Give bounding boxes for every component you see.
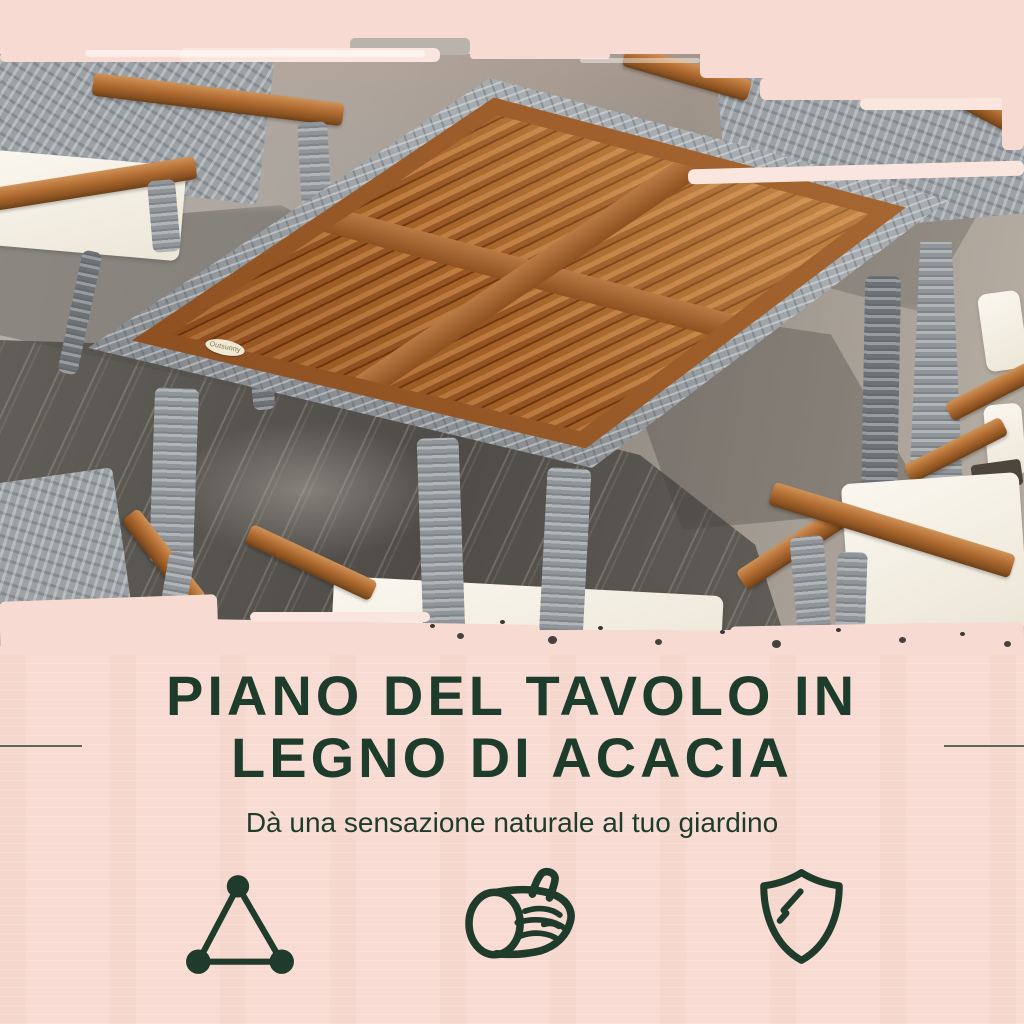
paint-speckles — [430, 624, 435, 628]
paint-stroke-white — [580, 58, 700, 63]
headline-line-1: PIANO DEL TAVOLO IN — [0, 665, 1024, 727]
headline-line-2: LEGNO DI ACACIA — [0, 727, 1024, 789]
paint-stroke — [250, 612, 430, 622]
paint-stroke — [700, 50, 1024, 78]
divider-left — [0, 745, 82, 747]
paint-stroke-top — [0, 0, 1024, 54]
shield-icon — [753, 866, 850, 966]
subtitle: Dà una sensazione naturale al tuo giardi… — [0, 807, 1024, 839]
table-leg — [417, 437, 466, 638]
seat-cushion — [977, 289, 1024, 372]
paint-stroke — [1002, 0, 1024, 150]
headline: PIANO DEL TAVOLO IN LEGNO DI ACACIA — [0, 665, 1024, 789]
product-banner: Outsunny — [0, 0, 1024, 1024]
hero-photo: Outsunny — [0, 0, 1024, 655]
table-leg — [538, 467, 591, 644]
feature-section: PIANO DEL TAVOLO IN LEGNO DI ACACIA Dà u… — [0, 655, 1024, 1024]
divider-right — [944, 745, 1024, 747]
paint-stroke — [860, 98, 1024, 110]
wood-log-icon — [460, 862, 584, 968]
paint-stroke-bottom — [0, 646, 1024, 655]
paint-stroke — [760, 78, 1024, 100]
triangle-nodes-icon — [183, 872, 297, 976]
puddle-reflection — [170, 420, 440, 560]
paint-stroke-white — [85, 50, 425, 57]
